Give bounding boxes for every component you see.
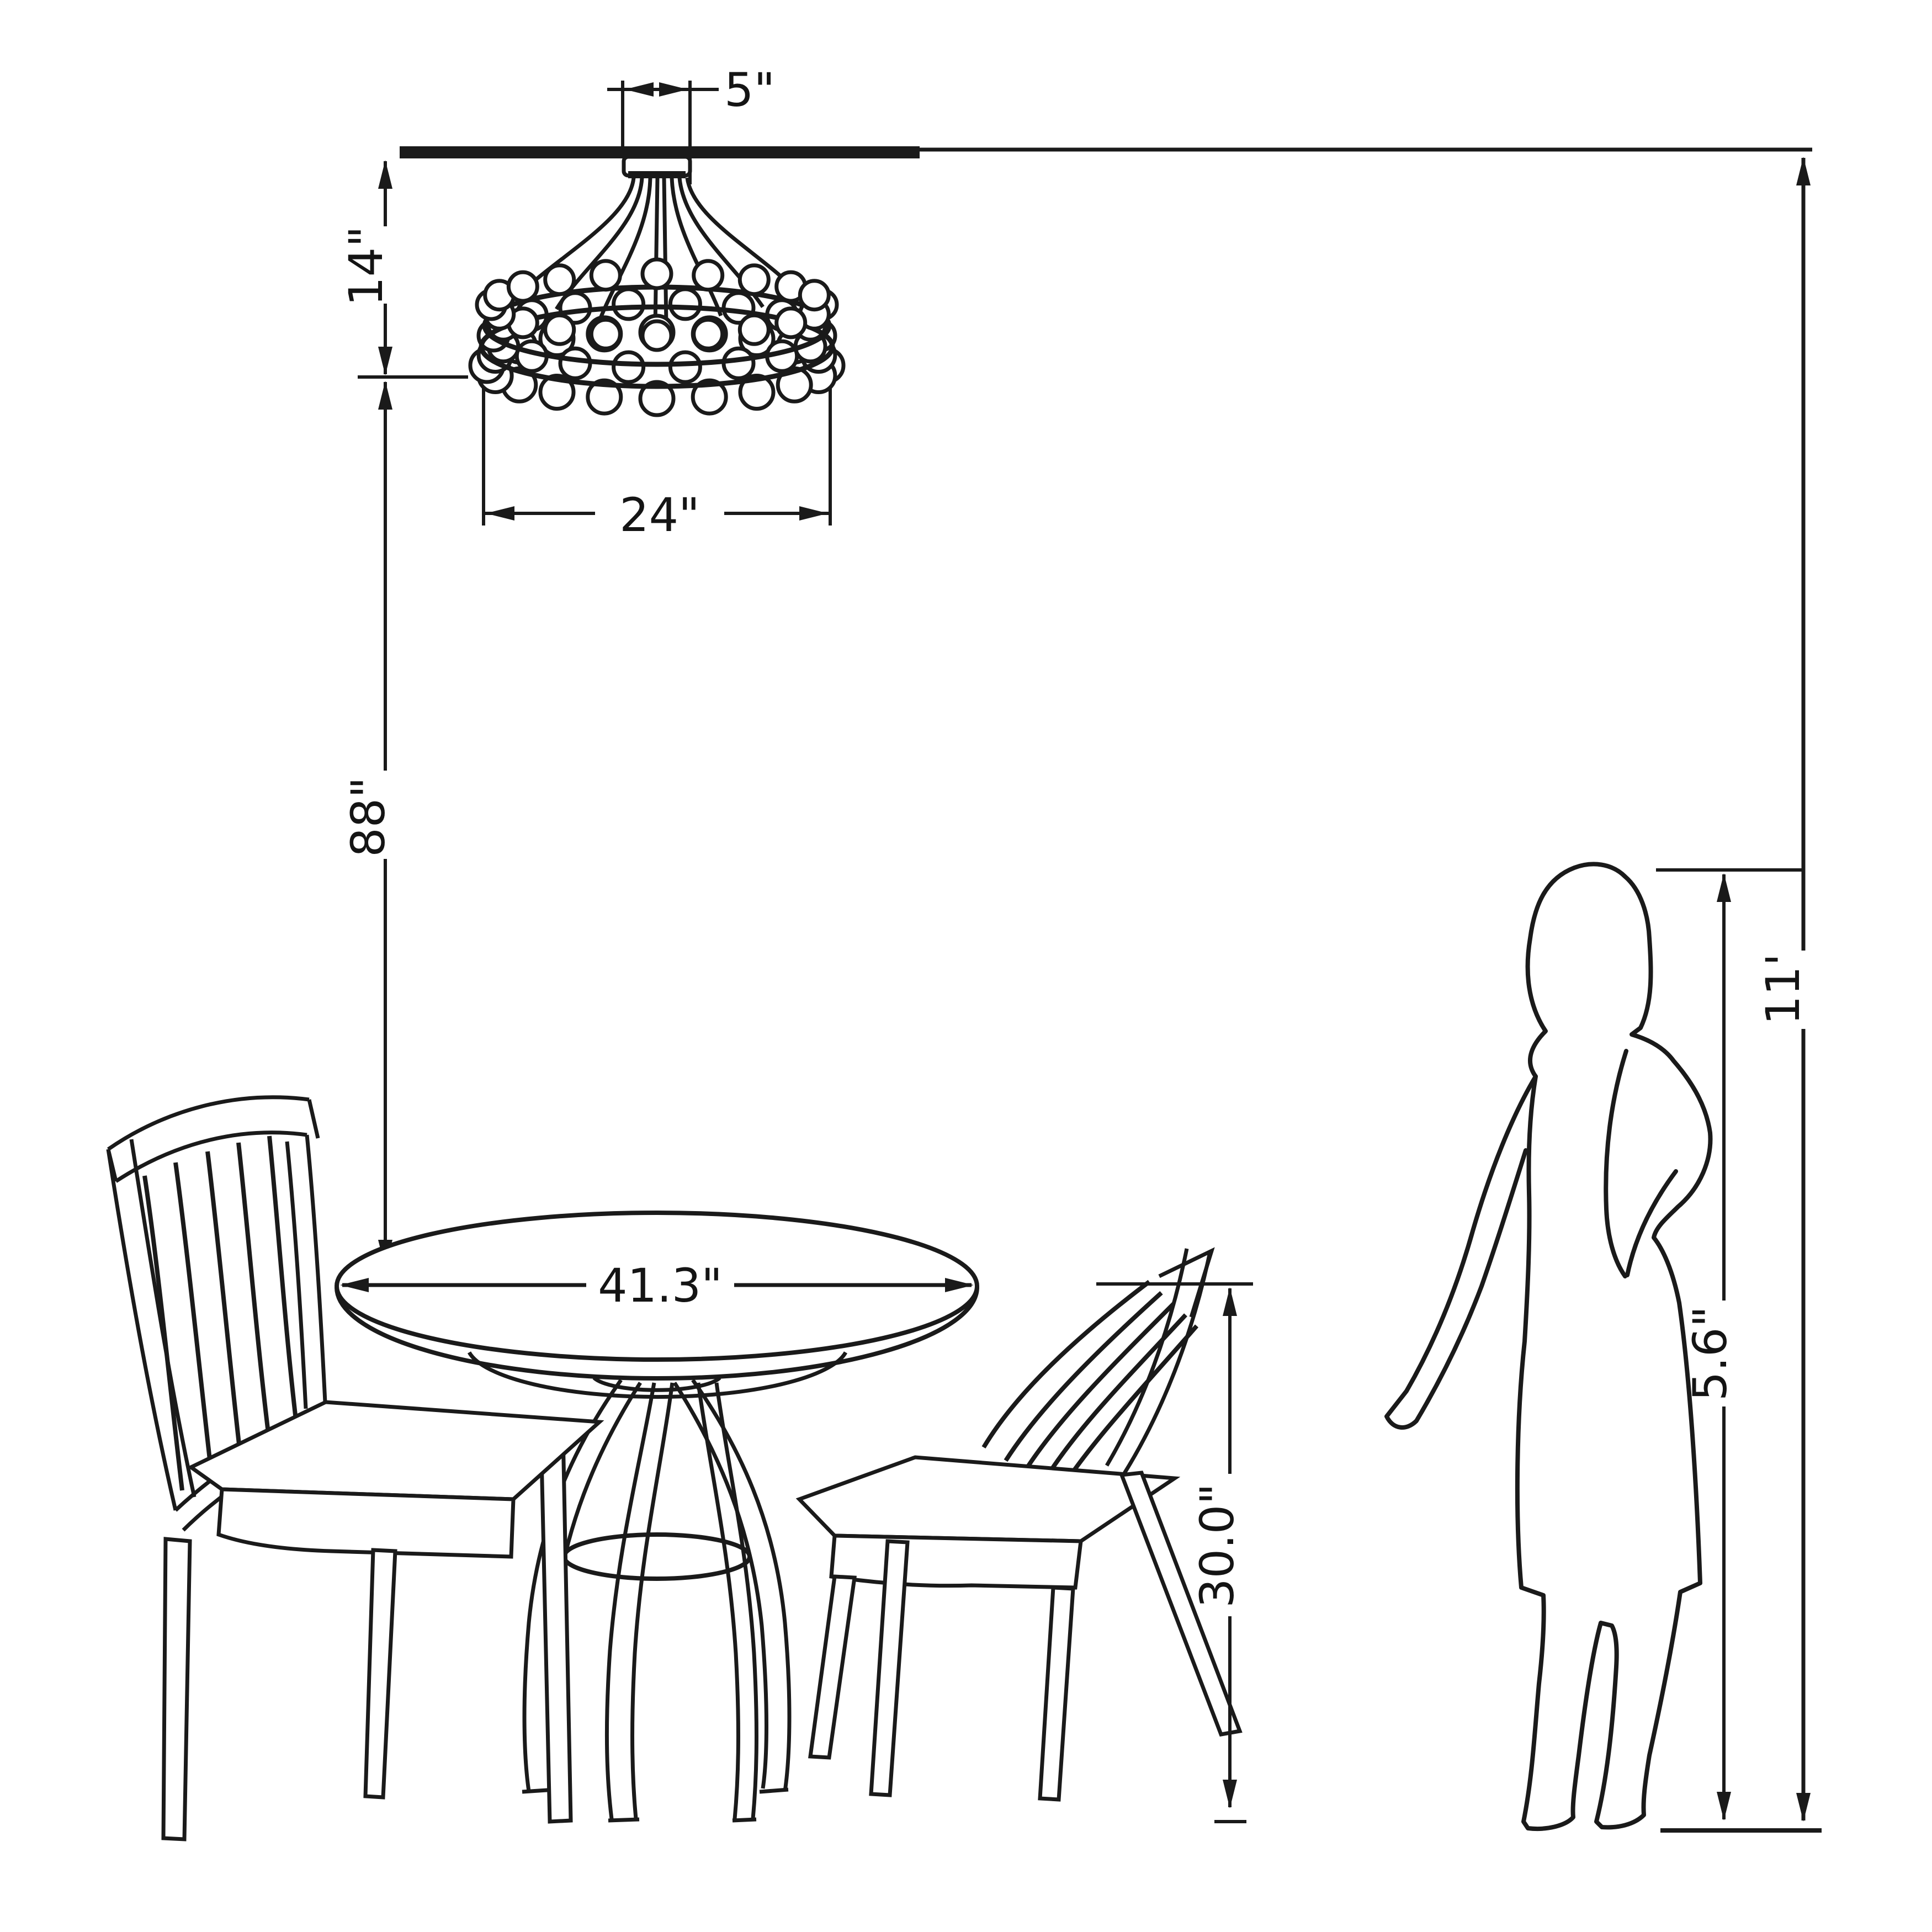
arrow-up-icon	[1796, 157, 1811, 185]
arrow-up-icon	[378, 160, 392, 189]
arrow-left-icon	[625, 82, 654, 97]
chandelier	[470, 157, 843, 415]
label-chandelier-height: 14"	[339, 226, 393, 306]
label-ceiling-height: 11'	[1756, 953, 1810, 1025]
chandelier-bead	[508, 272, 537, 301]
arrow-down-icon	[1717, 1792, 1731, 1820]
arrow-right-icon	[799, 506, 828, 521]
chandelier-bead	[740, 315, 768, 344]
chandelier-bead	[800, 281, 829, 310]
person-left-arm	[1387, 1076, 1536, 1427]
chandelier-bead	[643, 321, 671, 350]
dimension-diagram: 5" 14"	[0, 0, 1932, 1932]
ceiling-line	[400, 150, 1812, 152]
person-silhouette	[1387, 864, 1710, 1829]
arrow-right-icon	[659, 82, 688, 97]
arrow-down-icon	[1796, 1793, 1811, 1822]
arrow-up-icon	[1717, 873, 1731, 902]
chandelier-bead	[591, 320, 620, 348]
chandelier-bead	[694, 320, 723, 348]
chandelier-bead	[670, 352, 700, 382]
person-torso-edge	[1606, 1051, 1626, 1276]
chandelier-bead	[614, 289, 644, 319]
arrow-up-icon	[1223, 1287, 1237, 1316]
dimension-table-height: 30.0"	[1190, 1287, 1246, 1822]
arrow-left-icon	[486, 506, 514, 521]
arrow-down-icon	[1223, 1780, 1237, 1808]
chair-right-slats	[984, 1282, 1197, 1486]
chair-left-seat	[191, 1402, 599, 1499]
chandelier-bead	[545, 266, 574, 294]
arrow-up-icon	[378, 381, 392, 410]
dimension-drop-to-table: 88"	[341, 381, 395, 1268]
chair-right-front-leg	[810, 1577, 854, 1758]
dimension-ceiling-height: 11'	[1756, 157, 1811, 1822]
label-table-height: 30.0"	[1190, 1483, 1244, 1608]
label-person-height: 5.6"	[1683, 1306, 1737, 1401]
label-table-diameter: 41.3"	[598, 1259, 723, 1313]
chair-right-apron	[831, 1536, 1081, 1588]
chandelier-canopy	[624, 157, 690, 178]
label-chandelier-diameter: 24"	[619, 488, 700, 542]
chandelier-bead	[670, 289, 700, 319]
chair-left-rear-leg	[541, 1432, 571, 1822]
arrow-down-icon	[378, 347, 392, 375]
label-canopy-width: 5"	[724, 63, 775, 117]
chair-left-apron	[219, 1489, 513, 1557]
chandelier-bead	[740, 266, 768, 294]
chandelier-bead	[591, 261, 620, 290]
chandelier-bead	[643, 259, 671, 288]
chandelier-bead	[545, 315, 574, 344]
diagram-canvas: 5" 14"	[0, 0, 1932, 1932]
chandelier-bead	[614, 352, 644, 382]
chandelier-bead	[777, 309, 805, 337]
chair-right-seat	[799, 1457, 1175, 1541]
chandelier-bead	[694, 261, 723, 290]
chair-right-rear-leg	[1040, 1588, 1073, 1800]
label-drop-to-table: 88"	[341, 777, 395, 857]
chair-left-mid-leg	[365, 1550, 395, 1797]
chair-left-front-leg	[163, 1539, 190, 1839]
dimension-chandelier-height: 14"	[339, 160, 468, 377]
